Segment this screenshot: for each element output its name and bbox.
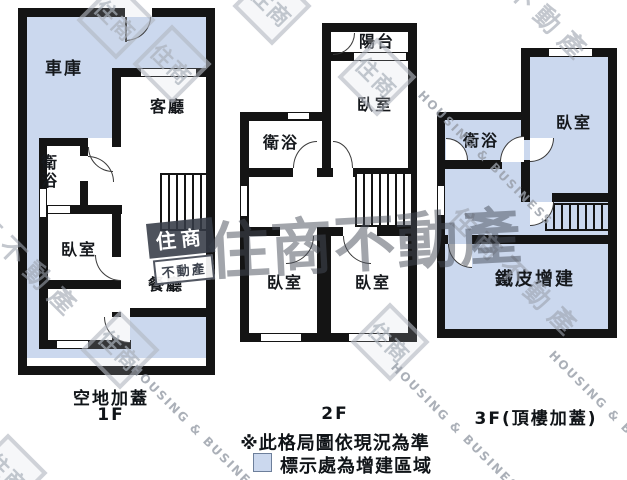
wall	[472, 235, 617, 244]
room-label-bath: 衛浴	[463, 132, 499, 150]
addition-area	[27, 138, 39, 358]
room-label-garage: 車庫	[45, 60, 83, 80]
room-label-metal-addition: 鐵皮增建	[495, 270, 575, 291]
legend-addition-swatch	[253, 453, 272, 472]
window	[39, 188, 47, 218]
legend-addition-label: 標示處為增建區域	[280, 452, 432, 478]
wall	[112, 205, 121, 257]
stairs	[355, 172, 412, 227]
window	[548, 48, 593, 57]
room-label-bedroom: 臥室	[556, 114, 592, 132]
window	[260, 333, 302, 342]
wall	[39, 280, 121, 289]
wall	[80, 138, 88, 156]
wall	[240, 168, 293, 177]
room-label-bedroom: 臥室	[61, 241, 97, 259]
wall	[317, 168, 333, 177]
entry-opening	[125, 8, 152, 17]
room-label-bath: 衛浴	[263, 134, 299, 152]
wall	[445, 160, 502, 169]
stairs	[545, 203, 611, 231]
wall	[521, 193, 530, 202]
floor-plan-page: 車庫 客廳 衛浴 臥室 餐廳	[0, 0, 627, 480]
room-label-balcony: 陽台	[359, 33, 395, 51]
room-label-bath: 衛浴	[41, 154, 61, 191]
hall-passage	[322, 177, 331, 227]
room-label-bedroom-right: 臥室	[355, 274, 391, 292]
brand-diamond-watermark: 住商	[0, 433, 48, 480]
room-label-dining: 餐廳	[148, 276, 184, 294]
wall	[39, 205, 48, 349]
room-label-bedroom-top: 臥室	[357, 96, 393, 114]
wall	[130, 308, 206, 317]
floor-plan-2f: 陽台 臥室 衛浴 臥室 臥室	[240, 23, 417, 342]
wall	[552, 193, 617, 202]
window	[140, 68, 197, 77]
wall	[317, 236, 331, 333]
wall	[377, 227, 417, 236]
wall	[249, 227, 280, 236]
window	[56, 340, 89, 349]
room-label-living: 客廳	[150, 98, 186, 116]
wall	[317, 227, 343, 236]
wall	[437, 235, 448, 244]
stairs	[160, 173, 206, 231]
window	[437, 185, 445, 216]
window	[353, 52, 407, 61]
window	[287, 112, 310, 120]
floor-plan-1f: 車庫 客廳 衛浴 臥室 餐廳	[18, 8, 215, 375]
caption-2f: 2F	[265, 404, 405, 424]
wall	[112, 68, 121, 147]
window	[240, 185, 248, 217]
addition-area	[121, 317, 206, 358]
caption-1f: 1F	[41, 405, 181, 425]
hall-passage	[521, 202, 530, 235]
floor-plan-3f: 衛浴 臥室 鐵皮增建	[437, 48, 617, 338]
door-leaf	[125, 17, 127, 42]
window	[47, 205, 71, 214]
caption-3f: 3F(頂樓加蓋)	[446, 404, 626, 429]
window	[348, 333, 390, 342]
room-label-bedroom-left: 臥室	[267, 274, 303, 292]
